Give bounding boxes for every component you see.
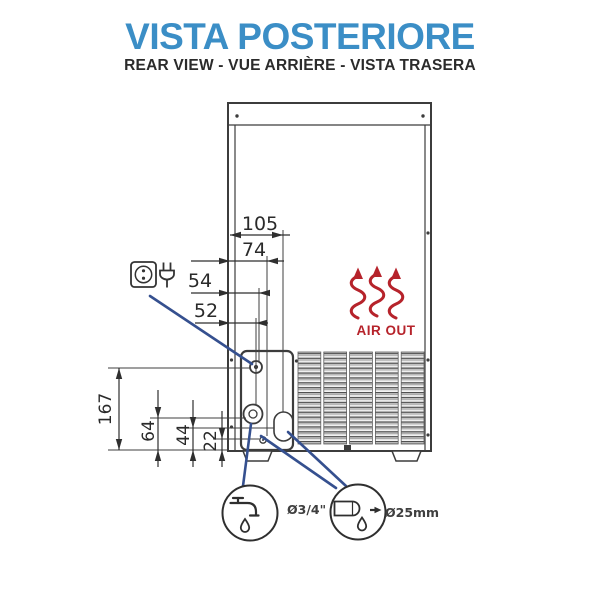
dim-line-167 xyxy=(116,368,122,450)
water-callout-circle xyxy=(223,486,278,541)
dim-52-label: 52 xyxy=(186,301,226,321)
dim-74-label: 74 xyxy=(234,240,274,260)
dim-105-label: 105 xyxy=(238,214,282,234)
dim-22-label: 22 xyxy=(201,421,221,461)
water-inlet-size-label: Ø3/4" xyxy=(287,502,326,517)
dim-167-label: 167 xyxy=(96,382,116,436)
dim-64-label: 64 xyxy=(139,411,159,451)
dim-44-label: 44 xyxy=(174,415,194,455)
rear-view-diagram: VISTA POSTERIORE REAR VIEW - VUE ARRIÈRE… xyxy=(0,0,600,600)
drain-size-label: Ø25mm xyxy=(385,505,439,520)
air-out-label: AIR OUT xyxy=(346,323,426,338)
dim-54-label: 54 xyxy=(180,271,220,291)
drain-callout xyxy=(331,485,386,540)
right-foot xyxy=(392,451,421,461)
water-callout xyxy=(223,486,278,541)
power-socket-icon xyxy=(131,262,156,287)
vent-grille xyxy=(298,352,424,444)
power-plug-icon xyxy=(160,263,174,288)
